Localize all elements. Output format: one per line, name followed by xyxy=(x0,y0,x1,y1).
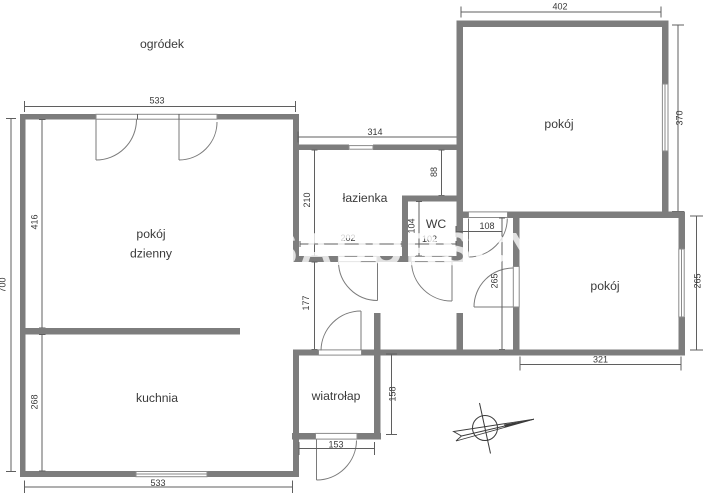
svg-text:314: 314 xyxy=(367,127,382,137)
svg-text:533: 533 xyxy=(149,96,164,106)
svg-text:210: 210 xyxy=(302,192,312,207)
svg-text:kuchnia: kuchnia xyxy=(136,391,178,405)
svg-text:153: 153 xyxy=(328,440,343,450)
svg-text:700: 700 xyxy=(0,277,8,292)
svg-text:pokój: pokój xyxy=(136,227,165,241)
svg-text:177: 177 xyxy=(301,295,311,310)
svg-text:wiatrołap: wiatrołap xyxy=(311,389,361,403)
svg-text:dzienny: dzienny xyxy=(130,247,173,261)
svg-text:370: 370 xyxy=(675,110,685,125)
svg-text:88: 88 xyxy=(429,167,439,177)
svg-text:158: 158 xyxy=(387,386,397,401)
svg-text:402: 402 xyxy=(552,2,567,12)
svg-text:268: 268 xyxy=(29,394,39,409)
svg-text:265: 265 xyxy=(693,273,703,288)
svg-text:łazienka: łazienka xyxy=(343,191,388,205)
svg-text:pokój: pokój xyxy=(544,117,573,131)
svg-text:ogródek: ogródek xyxy=(140,37,185,51)
svg-text:pokój: pokój xyxy=(590,279,619,293)
svg-text:416: 416 xyxy=(29,214,39,229)
svg-text:321: 321 xyxy=(593,355,608,365)
svg-text:265: 265 xyxy=(490,273,500,288)
svg-text:533: 533 xyxy=(150,478,165,488)
svg-text:SADURSCY: SADURSCY xyxy=(267,223,541,275)
